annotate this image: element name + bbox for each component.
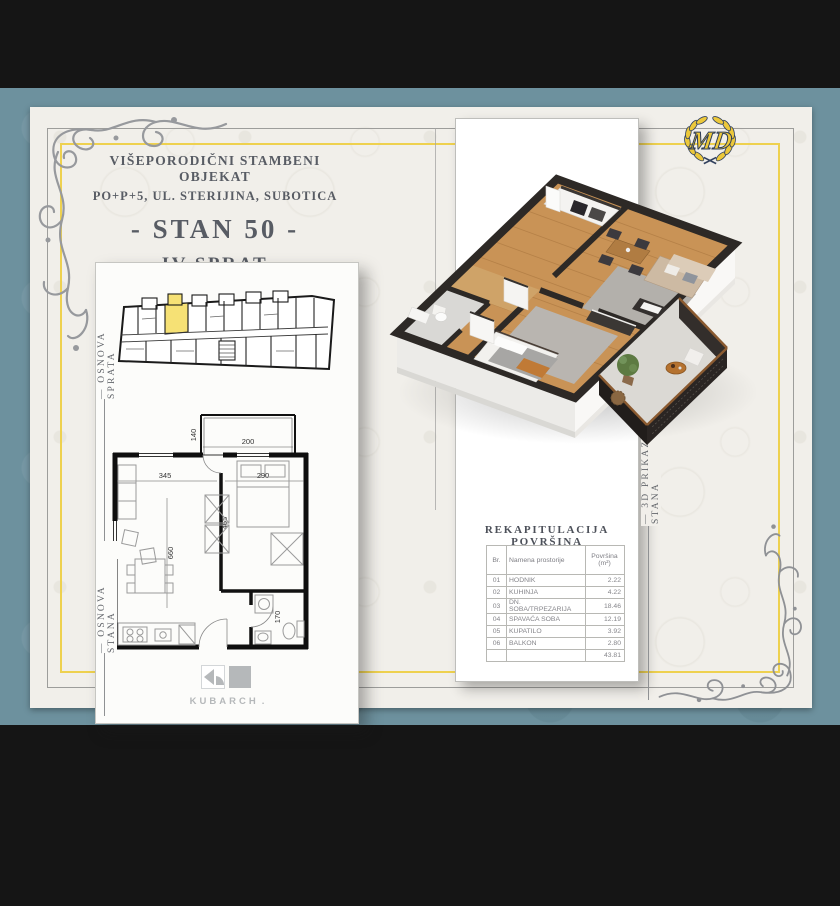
- table-row: 06 BALKON 2.80: [487, 638, 625, 650]
- row-name: KUPATILO: [507, 626, 586, 638]
- table-row: 03 DN. SOBA/TRPEZARIJA 18.46: [487, 599, 625, 614]
- dim-living-depth: 660: [166, 547, 175, 560]
- 3d-render: [378, 160, 763, 452]
- table-row: 01 HODNIK 2.22: [487, 575, 625, 587]
- building-address: PO+P+5, UL. STERIJINA, SUBOTICA: [72, 189, 358, 204]
- kubarch-icon: [201, 665, 253, 689]
- col-header-br: Br.: [487, 546, 507, 575]
- label-osnova-sprata: — OSNOVA SPRATA: [97, 283, 117, 399]
- row-name: DN. SOBA/TRPEZARIJA: [507, 599, 586, 614]
- row-br: 04: [487, 614, 507, 626]
- leader-line: [104, 399, 105, 541]
- table-row: 04 SPAVAĆA SOBA 12.19: [487, 614, 625, 626]
- table-total-row: 43.81: [487, 650, 625, 662]
- row-name: HODNIK: [507, 575, 586, 587]
- row-br: 02: [487, 587, 507, 599]
- row-name: BALKON: [507, 638, 586, 650]
- unit-floor-plan-drawing: 200 140: [103, 403, 349, 663]
- dim-balcony-width: 200: [242, 437, 255, 446]
- table-header-row: Br. Namena prostorije Površina (m²): [487, 546, 625, 575]
- unit-number-title: - STAN 50 -: [72, 214, 358, 245]
- row-area: 4.22: [586, 587, 625, 599]
- kubarch-logo: KUBARCH.: [96, 665, 358, 707]
- kubarch-wordmark: KUBARCH.: [96, 696, 358, 707]
- md-monogram: MD: [687, 126, 734, 155]
- col-header-area-unit: (m²): [588, 560, 621, 567]
- row-br: 03: [487, 599, 507, 614]
- leader-line: [104, 653, 105, 716]
- total-area: 43.81: [586, 650, 625, 662]
- row-br: 05: [487, 626, 507, 638]
- row-area: 18.46: [586, 599, 625, 614]
- row-br: 06: [487, 638, 507, 650]
- dim-bath-depth: 170: [273, 611, 282, 624]
- row-name: KUHINJA: [507, 587, 586, 599]
- table-row: 02 KUHINJA 4.22: [487, 587, 625, 599]
- row-area: 2.22: [586, 575, 625, 587]
- col-header-name: Namena prostorije: [507, 546, 586, 575]
- row-area: 3.92: [586, 626, 625, 638]
- brochure-page: VIŠEPORODIČNI STAMBENI OBJEKAT PO+P+5, U…: [0, 0, 840, 906]
- dim-bedroom-width: 290: [257, 471, 270, 480]
- label-osnova-stana: — OSNOVA STANA: [97, 541, 117, 653]
- building-floor-overview-drawing: [116, 279, 341, 381]
- area-recap-table: Br. Namena prostorije Površina (m²) 01 H…: [486, 545, 625, 662]
- table-row: 05 KUPATILO 3.92: [487, 626, 625, 638]
- leader-line: [648, 524, 649, 700]
- dim-living-width: 345: [159, 471, 172, 480]
- plan-sheet: 200 140: [95, 262, 359, 724]
- row-br: 01: [487, 575, 507, 587]
- row-area: 12.19: [586, 614, 625, 626]
- row-area: 2.80: [586, 638, 625, 650]
- row-name: SPAVAĆA SOBA: [507, 614, 586, 626]
- building-title: VIŠEPORODIČNI STAMBENI OBJEKAT: [72, 153, 358, 185]
- col-header-area: Površina: [588, 553, 621, 560]
- highlighted-unit: [165, 303, 188, 334]
- dim-balcony-depth: 140: [189, 429, 198, 442]
